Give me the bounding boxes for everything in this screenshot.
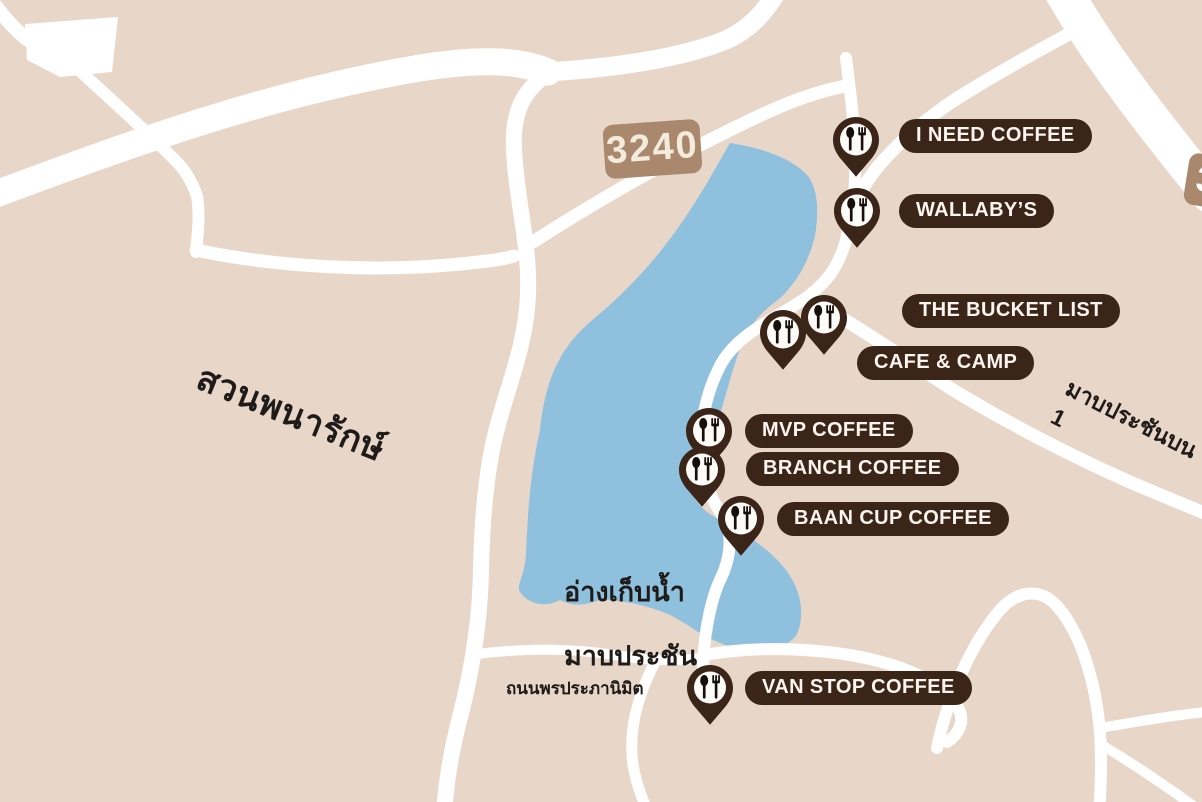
map-pin-i-need-coffee[interactable] [832, 116, 880, 178]
reservoir-name-line1: อ่างเก็บน้ำ [564, 577, 697, 609]
route-marker-3240: 3240 [602, 119, 703, 180]
map-label-branch-coffee: BRANCH COFFEE [746, 452, 959, 486]
map-label-baan-cup-coffee: BAAN CUP COFFEE [777, 502, 1009, 536]
map-label-i-need-coffee: I NEED COFFEE [899, 119, 1092, 153]
coffee-map: 3240 3 สวนพนารักษ์ อ่างเก็บน้ำ มาบประชัน… [0, 0, 1202, 802]
map-pin-van-stop-coffee[interactable] [686, 664, 734, 726]
map-pin-the-bucket-list[interactable] [800, 294, 848, 356]
map-label-cafe-and-camp: CAFE & CAMP [857, 346, 1034, 380]
map-label-mvp-coffee: MVP COFFEE [745, 414, 913, 448]
map-pin-cafe-and-camp[interactable] [759, 309, 807, 371]
reservoir-name-line2: มาบประชัน [564, 641, 697, 673]
south-road-name-label: ถนนพรประภานิมิต [506, 675, 644, 702]
map-label-van-stop-coffee: VAN STOP COFFEE [745, 671, 972, 705]
map-label-the-bucket-list: THE BUCKET LIST [902, 294, 1120, 328]
map-pin-baan-cup-coffee[interactable] [717, 495, 765, 557]
map-pin-wallabys[interactable] [833, 187, 881, 249]
map-label-wallabys: WALLABY’S [899, 194, 1054, 228]
